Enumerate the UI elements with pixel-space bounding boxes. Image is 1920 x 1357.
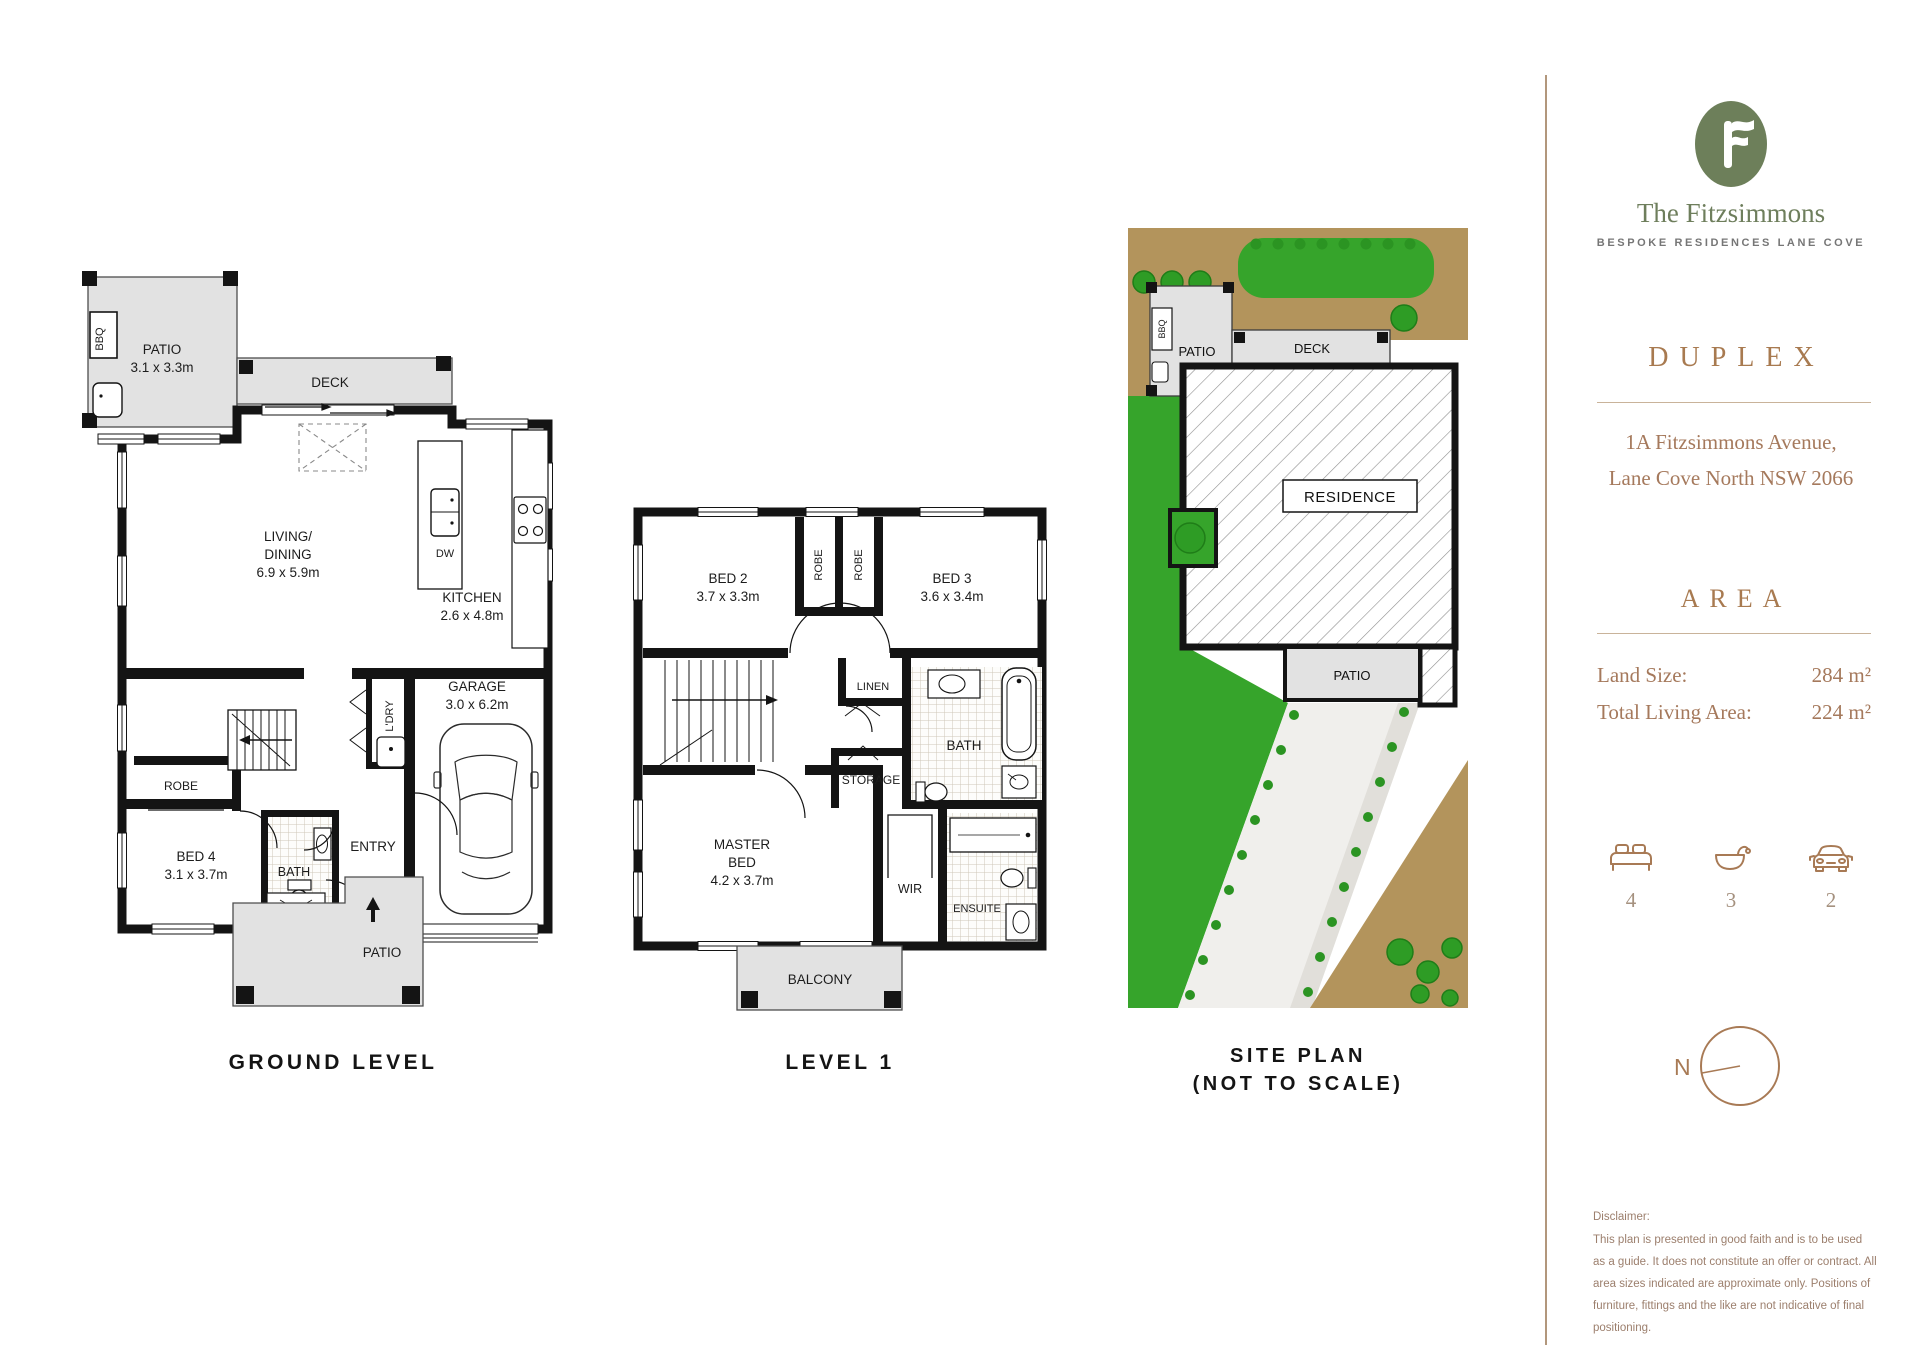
feature-cars: 2 — [1807, 840, 1855, 913]
bed-icon — [1607, 840, 1655, 874]
living-area-label: Total Living Area: — [1597, 700, 1752, 725]
site-residence-label: RESIDENCE — [1304, 489, 1396, 506]
car-icon — [1807, 840, 1855, 874]
ground-entry-label: ENTRY — [350, 839, 396, 854]
land-size-value: 284 m² — [1812, 663, 1871, 688]
site-deck-label: DECK — [1294, 341, 1330, 356]
site-plan: BBQ PATIO DECK RESIDENCE PATIO SITE PLAN… — [1128, 228, 1468, 1095]
level1-robe-right-label: ROBE — [853, 549, 865, 580]
ground-garage-label: GARAGE — [448, 679, 506, 694]
ground-patio-bottom-label: PATIO — [363, 945, 402, 960]
feature-baths: 3 — [1707, 840, 1755, 913]
rule-2 — [1597, 633, 1871, 634]
ground-ldry-label: L'DRY — [384, 700, 396, 732]
brand-tagline: BESPOKE RESIDENCES LANE COVE — [1555, 237, 1907, 249]
land-size-row: Land Size: 284 m² — [1597, 663, 1871, 688]
level1-bath-fittings — [911, 667, 1042, 802]
level1-storage-label: STORAGE — [842, 773, 900, 787]
fitzsimmons-logo-icon — [1694, 100, 1768, 188]
feature-beds: 4 — [1607, 840, 1655, 913]
level1-title: LEVEL 1 — [785, 1051, 894, 1074]
living-area-row: Total Living Area: 224 m² — [1597, 700, 1871, 725]
cars-count: 2 — [1826, 888, 1837, 913]
ground-patio-sink — [93, 383, 122, 417]
level1-bed3-dims: 3.6 x 3.4m — [920, 589, 983, 604]
ground-kitchen-dims: 2.6 x 4.8m — [440, 608, 503, 623]
baths-count: 3 — [1726, 888, 1737, 913]
level1-master-label-1: MASTER — [714, 837, 771, 852]
compass-north-label: N — [1674, 1054, 1691, 1080]
ground-living-label-1: LIVING/ — [264, 529, 312, 544]
ground-living-label-2: DINING — [264, 547, 311, 562]
ground-kitchen-island — [418, 441, 462, 589]
level1-bed3-label: BED 3 — [932, 571, 971, 586]
level1-ensuite-label: ENSUITE — [953, 903, 1001, 915]
level1-balcony-label: BALCONY — [788, 972, 853, 987]
bath-icon — [1707, 840, 1755, 874]
disclaimer-body: This plan is presented in good faith and… — [1593, 1229, 1877, 1339]
site-patio-top-label: PATIO — [1178, 344, 1215, 359]
site-plan-title-1: SITE PLAN — [1230, 1045, 1366, 1067]
address-line-1: 1A Fitzsimmons Avenue, — [1555, 430, 1907, 455]
level1-bed2-label: BED 2 — [708, 571, 747, 586]
level1-linen-label: LINEN — [857, 681, 889, 693]
brand-name: The Fitzsimmons — [1555, 198, 1907, 229]
level1-master-label-2: BED — [728, 855, 756, 870]
level1-ensuite-fittings — [947, 813, 1037, 941]
site-plan-title-2: (NOT TO SCALE) — [1193, 1073, 1404, 1095]
ground-level-title: GROUND LEVEL — [229, 1051, 438, 1074]
ground-garage-dims: 3.0 x 6.2m — [445, 697, 508, 712]
ground-bath-label: BATH — [278, 865, 310, 879]
floorplan-sheet: PATIO 3.1 x 3.3m BBQ DECK LIVING/ DINING… — [0, 0, 1920, 1357]
rule-1 — [1597, 402, 1871, 403]
level1-bath-label: BATH — [946, 738, 981, 753]
sidebar-divider — [1545, 75, 1547, 1345]
ground-bbq-label: BBQ — [94, 327, 106, 351]
level1-robe-left-label: ROBE — [813, 549, 825, 580]
disclaimer: Disclaimer: This plan is presented in go… — [1593, 1206, 1877, 1339]
floor-plan-ground-level: PATIO 3.1 x 3.3m BBQ DECK LIVING/ DINING… — [82, 271, 553, 1074]
car-graphic — [434, 724, 538, 914]
ground-kitchen-bench — [512, 430, 548, 648]
level1-wir-label: WIR — [898, 882, 922, 896]
ground-patio-top-label: PATIO — [143, 342, 182, 357]
ground-patio-top-dims: 3.1 x 3.3m — [130, 360, 193, 375]
living-area-value: 224 m² — [1812, 700, 1871, 725]
ground-living-dims: 6.9 x 5.9m — [256, 565, 319, 580]
level1-master-dims: 4.2 x 3.7m — [710, 873, 773, 888]
compass-icon: N — [1662, 1020, 1792, 1112]
floor-plan-level-1: BED 2 3.7 x 3.3m ROBE ROBE BED 3 3.6 x 3… — [634, 508, 1047, 1075]
address-line-2: Lane Cove North NSW 2066 — [1555, 466, 1907, 491]
area-section-title: AREA — [1555, 584, 1907, 614]
ground-kitchen-label: KITCHEN — [442, 590, 501, 605]
beds-count: 4 — [1626, 888, 1637, 913]
ground-deck-label: DECK — [311, 375, 349, 390]
ground-stairs — [228, 710, 296, 770]
land-size-label: Land Size: — [1597, 663, 1687, 688]
disclaimer-title: Disclaimer: — [1593, 1206, 1877, 1228]
site-bbq-label: BBQ — [1157, 319, 1167, 338]
level1-bed2-dims: 3.7 x 3.3m — [696, 589, 759, 604]
ground-bed4-dims: 3.1 x 3.7m — [164, 867, 227, 882]
property-type-title: DUPLEX — [1555, 342, 1907, 374]
site-patio-bottom-label: PATIO — [1333, 668, 1370, 683]
ground-bed4-label: BED 4 — [176, 849, 216, 864]
ground-robe-label: ROBE — [164, 779, 198, 793]
ground-dw-label: DW — [436, 548, 455, 560]
feature-summary: 4 3 2 — [1555, 840, 1907, 913]
